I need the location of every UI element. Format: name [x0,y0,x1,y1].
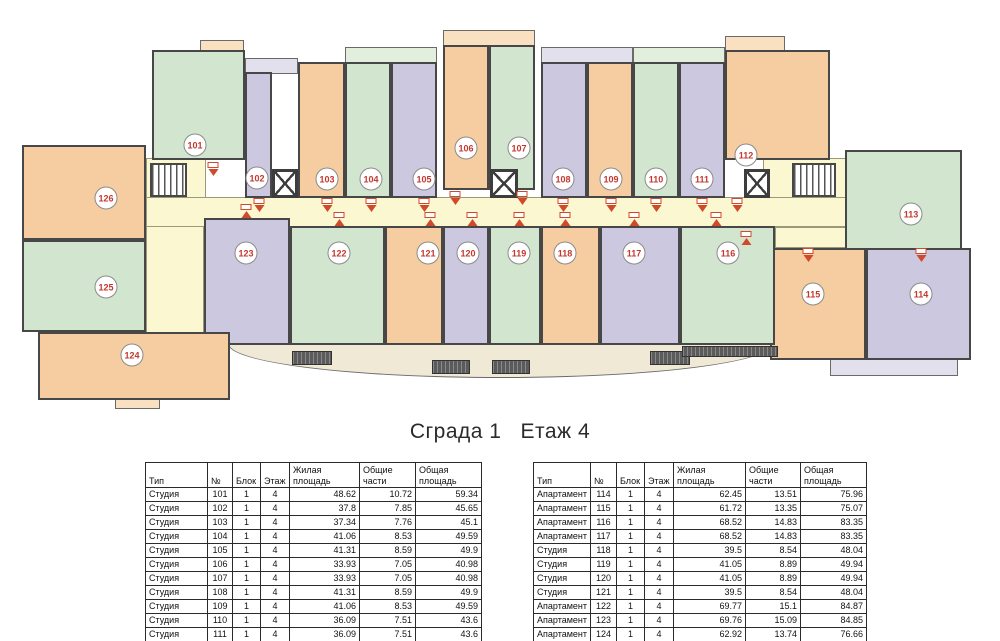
cell: 45.1 [416,516,482,530]
cell: 14.83 [746,530,801,544]
cell: 10.72 [360,488,416,502]
cell: 7.05 [360,558,416,572]
cell: 102 [208,502,233,516]
apartment-125 [22,240,146,332]
table-row: Студия1041441.068.5349.59 [146,530,482,544]
cell: 8.53 [360,530,416,544]
stairs-icon [150,163,187,197]
table-row: Студия1181439.58.5448.04 [534,544,867,558]
apartment-number-114: 114 [910,283,933,306]
apartment-number-108: 108 [552,168,575,191]
balcony [830,358,958,376]
cell: 41.06 [290,600,360,614]
cell: 109 [208,600,233,614]
cell: 1 [617,530,645,544]
table-row: Студия1061433.937.0540.98 [146,558,482,572]
cell: Апартамент [534,488,591,502]
cell: 118 [591,544,617,558]
column-header: Этаж [261,463,290,488]
apartment-number-111: 111 [691,168,714,191]
cell: Апартамент [534,628,591,641]
cell: 1 [233,572,261,586]
elevator-icon [744,169,770,198]
apartment-number-109: 109 [600,168,623,191]
cell: 122 [591,600,617,614]
cell: 49.94 [801,558,867,572]
cell: 40.98 [416,558,482,572]
cell: 41.06 [290,530,360,544]
cell: 1 [233,600,261,614]
entrance-arrow-icon [606,198,617,212]
cell: 62.45 [674,488,746,502]
cell: 43.6 [416,628,482,641]
cell: 83.35 [801,530,867,544]
cell: 1 [617,614,645,628]
cell: 119 [591,558,617,572]
cell: Студия [146,586,208,600]
cell: Апартамент [534,502,591,516]
entrance-arrow-icon [208,162,219,176]
column-header: Общие части [746,463,801,488]
entrance-arrow-icon [419,198,430,212]
cell: 8.54 [746,586,801,600]
cell: Апартамент [534,530,591,544]
apartment-number-117: 117 [623,242,646,265]
cell: 114 [591,488,617,502]
cell: 75.07 [801,502,867,516]
balcony-railing [432,360,470,374]
cell: 4 [645,502,674,516]
cell: 4 [645,558,674,572]
cell: 49.94 [801,572,867,586]
cell: 4 [261,516,290,530]
cell: 4 [261,600,290,614]
cell: 1 [233,516,261,530]
cell: 1 [233,614,261,628]
cell: 106 [208,558,233,572]
cell: Апартамент [534,614,591,628]
cell: 1 [617,572,645,586]
cell: Студия [534,572,591,586]
apartment-number-105: 105 [413,168,436,191]
apartment-number-102: 102 [246,167,269,190]
cell: 1 [233,586,261,600]
cell: 101 [208,488,233,502]
cell: Студия [146,614,208,628]
entrance-arrow-icon [711,212,722,226]
cell: 13.51 [746,488,801,502]
cell: 36.09 [290,614,360,628]
cell: 1 [617,586,645,600]
cell: 7.51 [360,628,416,641]
apartment-number-121: 121 [417,242,440,265]
cell: Студия [146,572,208,586]
cell: 61.72 [674,502,746,516]
cell: Студия [534,586,591,600]
cell: 123 [591,614,617,628]
cell: Студия [146,628,208,641]
cell: 107 [208,572,233,586]
table-row: Апартамент1151461.7213.3575.07 [534,502,867,516]
cell: 4 [261,530,290,544]
cell: 4 [645,544,674,558]
apartments-table-left: Тип№БлокЭтажЖилая площадьОбщие частиОбща… [145,462,482,641]
cell: 104 [208,530,233,544]
cell: 116 [591,516,617,530]
apartment-number-110: 110 [645,168,668,191]
cell: 7.85 [360,502,416,516]
apartment-number-120: 120 [457,242,480,265]
cell: Студия [146,544,208,558]
cell: 49.9 [416,544,482,558]
cell: 7.76 [360,516,416,530]
table-row: Студия1111436.097.5143.6 [146,628,482,641]
cell: 8.89 [746,558,801,572]
table-row: Апартамент1221469.7715.184.87 [534,600,867,614]
entrance-arrow-icon [366,198,377,212]
cell: 1 [233,488,261,502]
cell: 4 [645,530,674,544]
cell: 1 [233,628,261,641]
column-header: Блок [617,463,645,488]
cell: 41.05 [674,558,746,572]
entrance-arrow-icon [241,204,252,218]
cell: 1 [233,530,261,544]
cell: 7.51 [360,614,416,628]
cell: 76.66 [801,628,867,641]
cell: 37.34 [290,516,360,530]
column-header: Этаж [645,463,674,488]
cell: 49.59 [416,530,482,544]
column-header: № [208,463,233,488]
entrance-arrow-icon [916,248,927,262]
cell: 111 [208,628,233,641]
cell: 37.8 [290,502,360,516]
column-header: Тип [146,463,208,488]
table-row: Студия1211439.58.5448.04 [534,586,867,600]
cell: 8.89 [746,572,801,586]
cell: 33.93 [290,572,360,586]
cell: 117 [591,530,617,544]
entrance-arrow-icon [254,198,265,212]
column-header: Общая площадь [801,463,867,488]
cell: 69.77 [674,600,746,614]
cell: 4 [645,586,674,600]
cell: 8.59 [360,544,416,558]
cell: 105 [208,544,233,558]
cell: 4 [261,558,290,572]
cell: Студия [146,516,208,530]
cell: 4 [261,586,290,600]
cell: 124 [591,628,617,641]
table-row: Студия1011448.6210.7259.34 [146,488,482,502]
cell: 41.05 [674,572,746,586]
cell: 1 [617,600,645,614]
cell: 59.34 [416,488,482,502]
cell: 4 [645,488,674,502]
cell: 4 [645,628,674,641]
apartment-number-116: 116 [717,242,740,265]
apartment-number-113: 113 [900,203,923,226]
floor-plan-page: 1011021031041051061071081091101111121131… [0,0,1000,641]
cell: 115 [591,502,617,516]
entrance-arrow-icon [517,191,528,205]
cell: 14.83 [746,516,801,530]
table-row: Студия1051441.318.5949.9 [146,544,482,558]
cell: 4 [261,572,290,586]
cell: 120 [591,572,617,586]
apartment-number-103: 103 [316,168,339,191]
cell: 40.98 [416,572,482,586]
cell: 108 [208,586,233,600]
cell: 48.62 [290,488,360,502]
cell: 13.74 [746,628,801,641]
cell: 41.31 [290,586,360,600]
apartment-number-101: 101 [184,134,207,157]
cell: 1 [617,488,645,502]
cell: Апартамент [534,516,591,530]
cell: 8.54 [746,544,801,558]
balcony-railing [682,346,778,357]
corridor [146,226,204,333]
apartment-number-112: 112 [735,144,758,167]
cell: 48.04 [801,544,867,558]
table-row: Студия1071433.937.0540.98 [146,572,482,586]
cell: 1 [233,502,261,516]
cell: 84.87 [801,600,867,614]
apartment-number-119: 119 [508,242,531,265]
cell: 103 [208,516,233,530]
floor-plan: 1011021031041051061071081091101111121131… [0,0,1000,412]
cell: 39.5 [674,586,746,600]
cell: 7.05 [360,572,416,586]
cell: 13.35 [746,502,801,516]
cell: 15.09 [746,614,801,628]
apartment-number-126: 126 [95,187,118,210]
elevator-icon [272,169,298,198]
entrance-arrow-icon [651,198,662,212]
entrance-arrow-icon [629,212,640,226]
cell: 83.35 [801,516,867,530]
column-header: Жилая площадь [674,463,746,488]
cell: 69.76 [674,614,746,628]
cell: 1 [617,628,645,641]
entrance-arrow-icon [514,212,525,226]
cell: Студия [534,544,591,558]
entrance-arrow-icon [450,191,461,205]
cell: 1 [233,544,261,558]
column-header: Общие части [360,463,416,488]
cell: 4 [261,502,290,516]
cell: 8.59 [360,586,416,600]
cell: 1 [617,558,645,572]
table-row: Студия1091441.068.5349.59 [146,600,482,614]
apartment-106 [443,45,489,190]
column-header: № [591,463,617,488]
balcony-railing [492,360,530,374]
column-header: Тип [534,463,591,488]
cell: 36.09 [290,628,360,641]
apartment-number-106: 106 [455,137,478,160]
cell: 39.5 [674,544,746,558]
entrance-arrow-icon [697,198,708,212]
cell: 4 [645,572,674,586]
cell: 4 [645,516,674,530]
entrance-arrow-icon [732,198,743,212]
cell: 62.92 [674,628,746,641]
cell: 68.52 [674,530,746,544]
table-row: Студия1021437.87.8545.65 [146,502,482,516]
apartments-table-right: Тип№БлокЭтажЖилая площадьОбщие частиОбща… [533,462,867,641]
cell: 8.53 [360,600,416,614]
cell: Апартамент [534,600,591,614]
cell: 4 [261,544,290,558]
entrance-arrow-icon [803,248,814,262]
cell: 110 [208,614,233,628]
cell: Студия [146,558,208,572]
cell: 45.65 [416,502,482,516]
apartment-number-104: 104 [360,168,383,191]
cell: 49.59 [416,600,482,614]
table-row: Студия1201441.058.8949.94 [534,572,867,586]
apartment-number-122: 122 [328,242,351,265]
cell: 1 [617,502,645,516]
cell: Студия [534,558,591,572]
column-header: Общая площадь [416,463,482,488]
cell: 4 [261,614,290,628]
column-header: Блок [233,463,261,488]
cell: Студия [146,530,208,544]
cell: 4 [645,614,674,628]
apartment-123 [204,218,290,345]
apartment-number-125: 125 [95,276,118,299]
table-row: Апартамент1141462.4513.5175.96 [534,488,867,502]
apartment-number-107: 107 [508,137,531,160]
cell: 1 [617,516,645,530]
plan-title: Сграда 1 Етаж 4 [0,420,1000,444]
cell: 49.9 [416,586,482,600]
table-row: Студия1101436.097.5143.6 [146,614,482,628]
cell: 15.1 [746,600,801,614]
entrance-arrow-icon [334,212,345,226]
apartment-number-115: 115 [802,283,825,306]
table-row: Студия1081441.318.5949.9 [146,586,482,600]
column-header: Жилая площадь [290,463,360,488]
cell: 43.6 [416,614,482,628]
table-row: Апартамент1241462.9213.7476.66 [534,628,867,641]
cell: 33.93 [290,558,360,572]
stairs-icon [792,163,836,197]
cell: 121 [591,586,617,600]
cell: 1 [233,558,261,572]
cell: 75.96 [801,488,867,502]
cell: Студия [146,488,208,502]
elevator-icon [490,169,518,198]
entrance-arrow-icon [741,231,752,245]
apartment-126 [22,145,146,240]
entrance-arrow-icon [322,198,333,212]
apartment-number-124: 124 [121,344,144,367]
cell: 4 [261,628,290,641]
table-row: Студия1031437.347.7645.1 [146,516,482,530]
apartment-number-118: 118 [554,242,577,265]
entrance-arrow-icon [560,212,571,226]
balcony-railing [292,351,332,365]
cell: 84.85 [801,614,867,628]
table-row: Апартамент1171468.5214.8383.35 [534,530,867,544]
table-row: Апартамент1231469.7615.0984.85 [534,614,867,628]
cell: 41.31 [290,544,360,558]
entrance-arrow-icon [467,212,478,226]
entrance-arrow-icon [558,198,569,212]
table-row: Апартамент1161468.5214.8383.35 [534,516,867,530]
cell: 4 [645,600,674,614]
apartment-number-123: 123 [235,242,258,265]
table-row: Студия1191441.058.8949.94 [534,558,867,572]
cell: 4 [261,488,290,502]
entrance-arrow-icon [425,212,436,226]
cell: Студия [146,600,208,614]
cell: 48.04 [801,586,867,600]
cell: 1 [617,544,645,558]
cell: Студия [146,502,208,516]
cell: 68.52 [674,516,746,530]
